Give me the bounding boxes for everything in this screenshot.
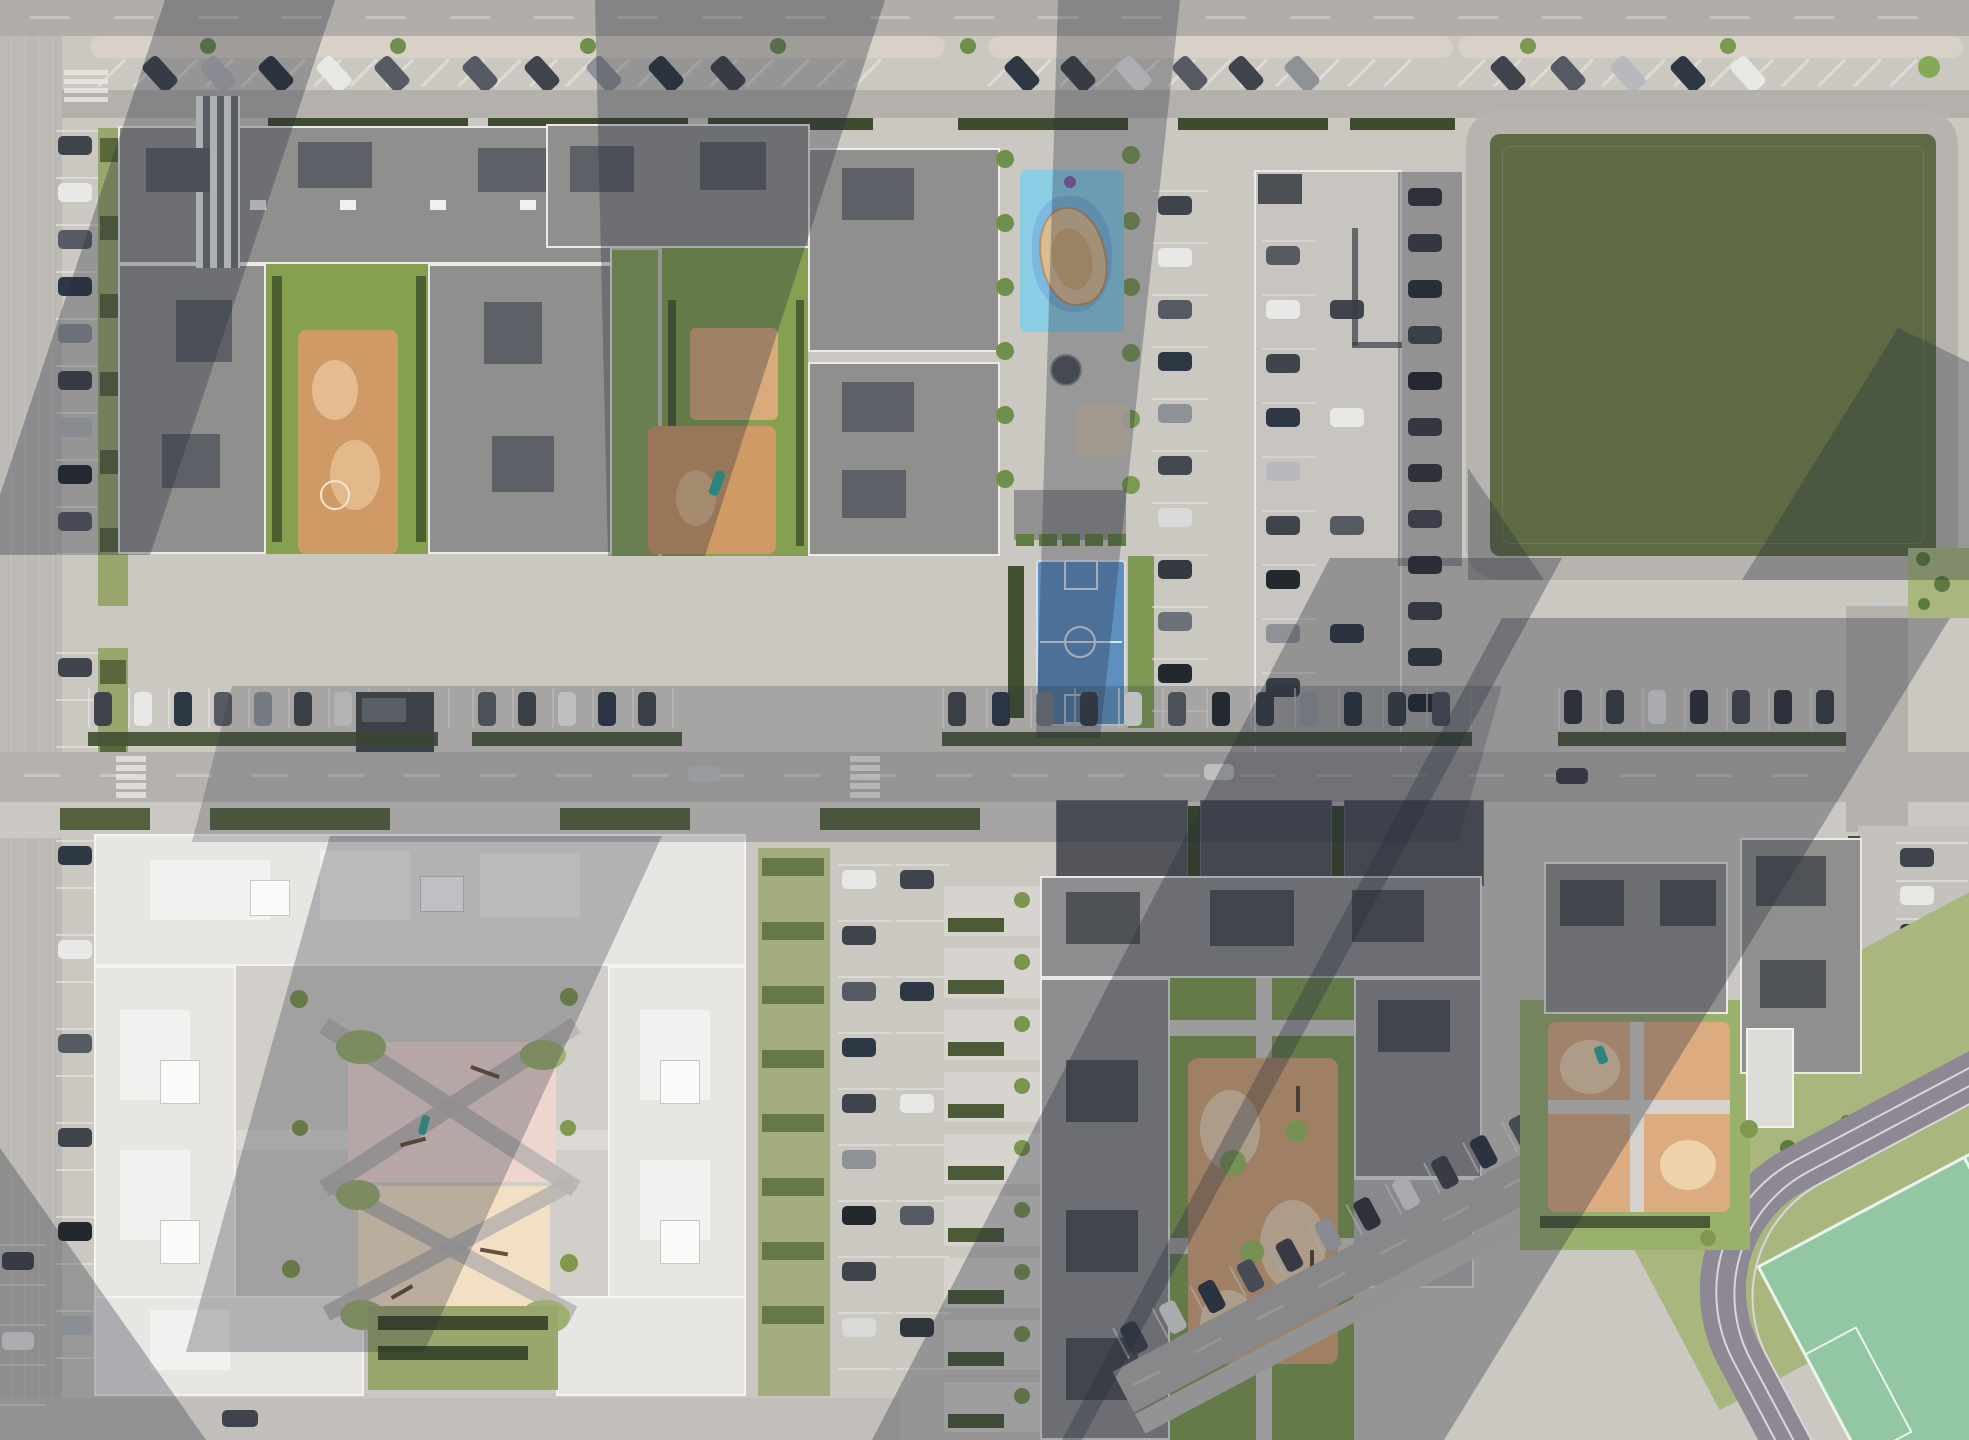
parked-car (174, 692, 192, 726)
parked-car (58, 940, 92, 959)
crosswalk-stripe (64, 88, 108, 93)
parked-car (1266, 516, 1300, 535)
parking-stall-line (56, 699, 98, 701)
parking-stall-line (1262, 294, 1316, 296)
parked-car-angled (461, 54, 500, 94)
white-penthouse (660, 1060, 700, 1104)
angled-stall-line (1817, 59, 1846, 88)
roof-penthouse (492, 436, 554, 492)
parking-stall-line (208, 688, 210, 728)
parked-car (134, 692, 152, 726)
deck-entry-canopy (1258, 174, 1302, 204)
sidewalk-hedge (60, 808, 150, 830)
parked-car (1158, 612, 1192, 631)
parked-car (58, 183, 92, 202)
median-tree (960, 38, 976, 54)
parking-stall-line (1262, 510, 1316, 512)
parked-car (842, 926, 876, 945)
parking-stall-line (896, 976, 950, 978)
hedge-block (762, 1178, 824, 1196)
crosswalk-stripe (64, 97, 108, 102)
patio-hedge (948, 980, 1004, 994)
roof-hatch (430, 200, 446, 210)
roof-penthouse (478, 148, 548, 192)
angled-stall-line (1853, 59, 1882, 88)
parking-stall-line (56, 934, 98, 936)
angled-stall-line (493, 59, 522, 88)
roof-hatch (520, 200, 536, 210)
crosswalk-stripe (64, 79, 108, 84)
white-building-roof (1746, 1028, 1794, 1128)
deck-wall (1352, 228, 1358, 346)
top-road-dash (1458, 16, 1498, 19)
hedge-strip (1350, 118, 1455, 130)
parked-car (900, 1206, 934, 1225)
parked-car (1158, 404, 1192, 423)
parked-car (1266, 462, 1300, 481)
parked-car (900, 870, 934, 889)
top-road-dash (1290, 16, 1330, 19)
top-road-dash (1374, 16, 1414, 19)
parked-car-angled (1171, 54, 1210, 94)
median-tree (1520, 38, 1536, 54)
roof-penthouse (842, 470, 906, 518)
parked-car (1158, 248, 1192, 267)
parking-stall-line (1896, 880, 1968, 882)
crosswalk-stripe (116, 774, 146, 780)
hedge-block (762, 986, 824, 1004)
plaza-tree (996, 150, 1014, 168)
courtyard-tree (1700, 1230, 1716, 1246)
angled-stall-line (1457, 59, 1486, 88)
crosswalk-stripe (116, 783, 146, 789)
plaza-tree (996, 406, 1014, 424)
parked-car (842, 1206, 876, 1225)
patio-tree (1014, 892, 1030, 908)
white-building-roof (556, 1296, 746, 1396)
courtyard-tree (1740, 1120, 1758, 1138)
parking-stall-line (896, 1200, 950, 1202)
parking-stall-line (1152, 346, 1208, 348)
top-road-dash (1794, 16, 1834, 19)
hedge-block (762, 1242, 824, 1260)
parking-stall-line (838, 1032, 892, 1034)
parked-car (1330, 516, 1364, 535)
parked-car-angled (1227, 54, 1266, 94)
crosswalk-stripe (64, 70, 108, 75)
parking-stall-line (128, 688, 130, 728)
playground-spot (1660, 1140, 1716, 1190)
parking-stall-line (1152, 554, 1208, 556)
parking-stall-line (56, 130, 98, 132)
playground-spot (312, 360, 358, 420)
patio-tree (1014, 1078, 1030, 1094)
parking-stall-line (1152, 450, 1208, 452)
parking-stall-line (838, 1144, 892, 1146)
parking-stall-line (838, 920, 892, 922)
patio-hedge (948, 1042, 1004, 1056)
top-road-dash (450, 16, 490, 19)
parking-stall-line (838, 1088, 892, 1090)
parked-car (842, 1038, 876, 1057)
hedge-block (100, 660, 126, 684)
top-road-dash (1626, 16, 1666, 19)
parking-stall-line (1152, 398, 1208, 400)
angled-stall-line (1889, 59, 1918, 88)
parked-car (1266, 246, 1300, 265)
roof-penthouse (842, 382, 914, 432)
parking-stall-line (1152, 606, 1208, 608)
parking-stall-line (1262, 564, 1316, 566)
top-road-dash (954, 16, 994, 19)
parking-stall-line (1896, 842, 1968, 844)
parking-stall-line (896, 920, 950, 922)
parked-car (1900, 886, 1934, 905)
parked-car (1330, 408, 1364, 427)
parked-car (58, 136, 92, 155)
parked-car (900, 1094, 934, 1113)
parking-stall-line (1152, 294, 1208, 296)
road-dash (176, 774, 212, 777)
roof-hatch (340, 200, 356, 210)
hedge-block (762, 1114, 824, 1132)
parking-stall-line (56, 1122, 98, 1124)
parking-stall-line (1152, 190, 1208, 192)
hedge-strip (1178, 118, 1328, 130)
parking-stall-line (896, 1032, 950, 1034)
parking-stall-line (1262, 240, 1316, 242)
parked-car (58, 658, 92, 677)
parked-car (1900, 848, 1934, 867)
parked-car (842, 982, 876, 1001)
parked-car (842, 1262, 876, 1281)
angled-stall-line (1781, 59, 1810, 88)
top-road-dash (366, 16, 406, 19)
deck-wall (1352, 342, 1402, 348)
white-penthouse (250, 880, 290, 916)
parked-car (1266, 300, 1300, 319)
angled-stall-line (1203, 59, 1232, 88)
courtyard-hedge (272, 276, 282, 542)
parking-stall-line (168, 688, 170, 728)
parked-car (1158, 508, 1192, 527)
top-road-dash (1206, 16, 1246, 19)
parked-car (1266, 408, 1300, 427)
parking-stall-line (896, 864, 950, 866)
parked-car (1158, 352, 1192, 371)
parking-stall-line (838, 864, 892, 866)
parking-stall-line (56, 1028, 98, 1030)
parking-stall-line (56, 1216, 98, 1218)
roof-penthouse (484, 302, 542, 364)
road-dash (24, 774, 60, 777)
aerial-site-render (0, 0, 1969, 1440)
parked-car (58, 846, 92, 865)
roof-penthouse (1760, 960, 1826, 1008)
top-road-dash (114, 16, 154, 19)
plaza-tree (996, 470, 1014, 488)
parking-stall-line (1262, 456, 1316, 458)
parking-stall-line (1262, 348, 1316, 350)
bush (1918, 598, 1930, 610)
white-penthouse (160, 1060, 200, 1104)
pergola-planter (1016, 534, 1034, 546)
parked-car (58, 1128, 92, 1147)
median-tree (580, 38, 596, 54)
hedge-block (762, 1050, 824, 1068)
hedge-block (762, 858, 824, 876)
parking-stall-line (896, 1256, 950, 1258)
parking-stall-line (838, 976, 892, 978)
parked-car (900, 982, 934, 1001)
patio-hedge (948, 1104, 1004, 1118)
patio-hedge (948, 1166, 1004, 1180)
parked-car-angled (373, 54, 412, 94)
parking-stall-line (56, 177, 98, 179)
parking-stall-line (1262, 402, 1316, 404)
roof-penthouse (1066, 892, 1140, 944)
parked-car (1158, 456, 1192, 475)
roof-penthouse (298, 142, 372, 188)
courtyard-tree (560, 1120, 576, 1136)
parking-stall-line (896, 1144, 950, 1146)
top-road-dash (30, 16, 70, 19)
crosswalk-stripe (116, 756, 146, 762)
courtyard-tree (560, 1254, 578, 1272)
plaza-tree (996, 342, 1014, 360)
hedge-block (762, 922, 824, 940)
top-road-dash (1878, 16, 1918, 19)
parked-car (58, 1034, 92, 1053)
parked-car (842, 1318, 876, 1337)
patio-tree (1014, 954, 1030, 970)
parking-stall-line (56, 887, 98, 889)
angled-stall-line (1383, 59, 1412, 88)
parking-stall-line (56, 981, 98, 983)
parked-car (94, 692, 112, 726)
plaza-tree (996, 214, 1014, 232)
parked-car (1158, 560, 1192, 579)
crosswalk-stripe (116, 765, 146, 771)
white-penthouse (160, 1220, 200, 1264)
parked-car (1158, 196, 1192, 215)
parking-stall-line (56, 1169, 98, 1171)
parking-stall-line (56, 652, 98, 654)
parking-stall-line (56, 746, 98, 748)
parking-stall-line (838, 1368, 892, 1370)
white-penthouse (660, 1220, 700, 1264)
top-road-dash (1710, 16, 1750, 19)
parking-stall-line (1152, 658, 1208, 660)
parking-stall-line (56, 1075, 98, 1077)
median-tree (1720, 38, 1736, 54)
patio-tree (1014, 1016, 1030, 1032)
crosswalk-stripe (116, 792, 146, 798)
parking-stall-line (838, 1312, 892, 1314)
parked-car-angled (1283, 54, 1322, 94)
top-road-dash (1542, 16, 1582, 19)
median-tree (390, 38, 406, 54)
parked-car (842, 1150, 876, 1169)
parked-car (842, 1094, 876, 1113)
parked-car (1266, 570, 1300, 589)
parking-stall-line (1152, 502, 1208, 504)
parking-stall-line (88, 688, 90, 728)
parking-stall-line (838, 1200, 892, 1202)
patio-hedge (948, 918, 1004, 932)
parking-stall-line (896, 1088, 950, 1090)
plaza-tree (996, 278, 1014, 296)
angled-stall-line (421, 59, 450, 88)
parking-stall-line (838, 1256, 892, 1258)
parked-car (1266, 354, 1300, 373)
parking-stall-line (1152, 242, 1208, 244)
angled-stall-line (349, 59, 378, 88)
driving-car (222, 1410, 258, 1427)
parked-car (1158, 664, 1192, 683)
parked-car-angled (1003, 54, 1042, 94)
top-road-dash (534, 16, 574, 19)
parked-car-angled (315, 54, 354, 94)
courtyard-hedge (416, 276, 426, 542)
parked-car (1158, 300, 1192, 319)
roof-penthouse (842, 168, 914, 220)
angled-stall-line (1347, 59, 1376, 88)
parked-car (1330, 300, 1364, 319)
halfcourt-circle (320, 480, 350, 510)
courtyard-hedge (796, 300, 804, 546)
parking-stall-line (56, 840, 98, 842)
parked-car-angled (1609, 54, 1648, 94)
hedge-block (762, 1306, 824, 1324)
parked-car (842, 870, 876, 889)
island-tree (1918, 56, 1940, 78)
